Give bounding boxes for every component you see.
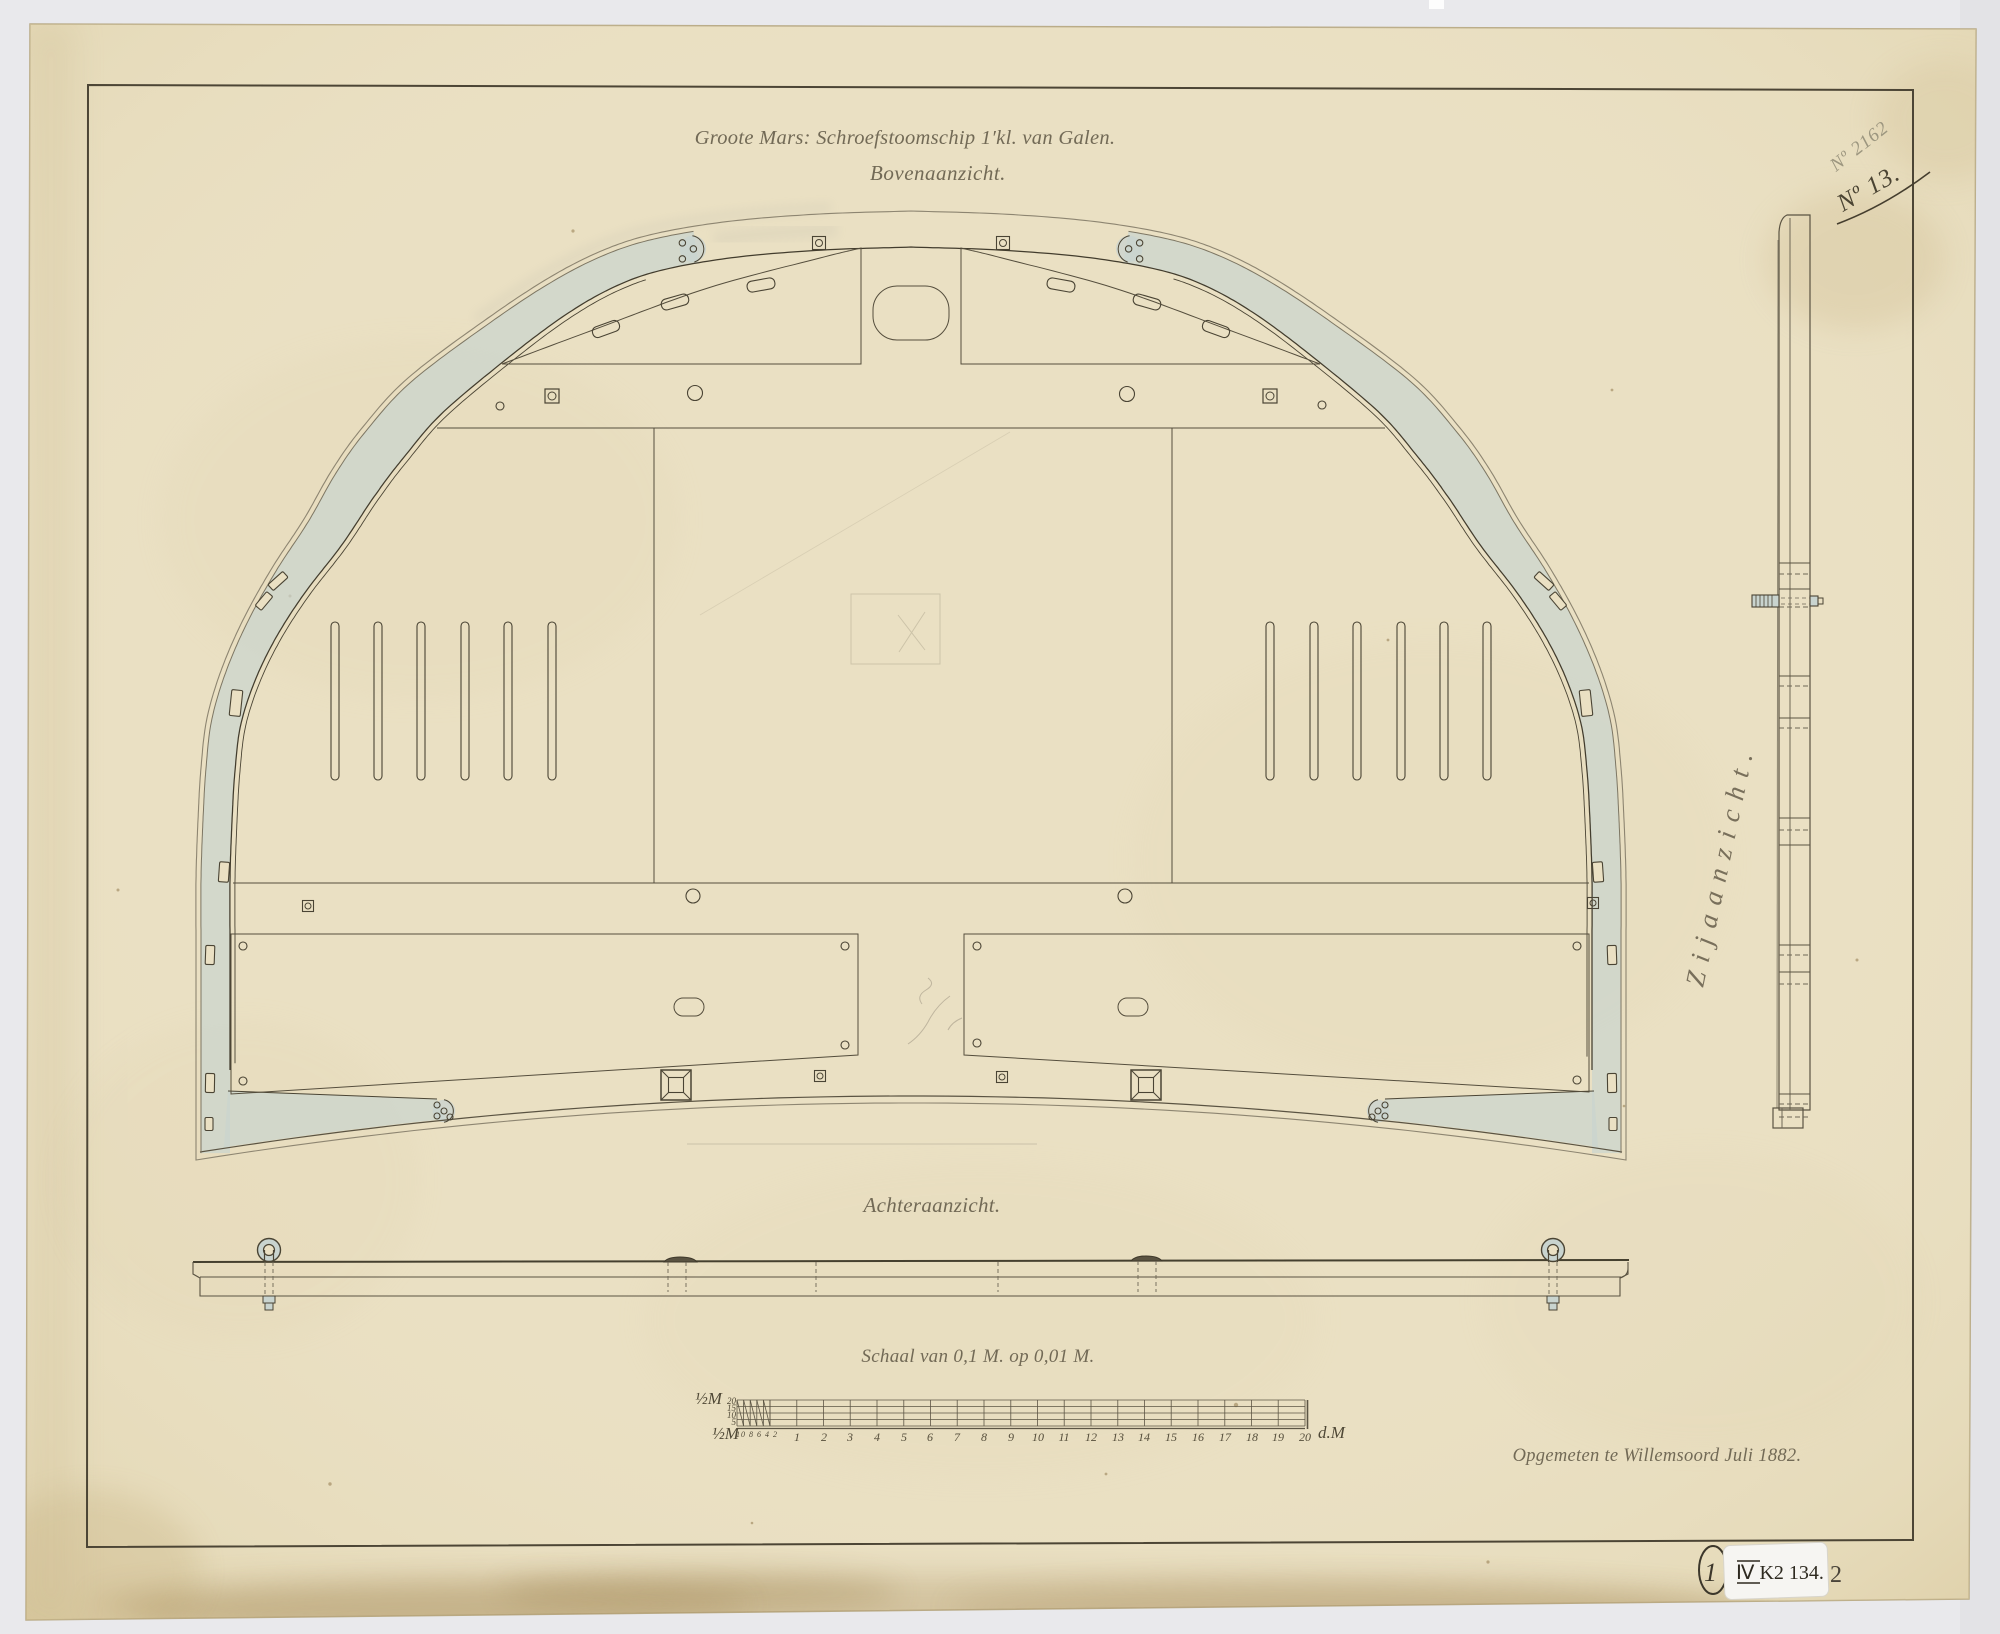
svg-text:15: 15 xyxy=(1165,1430,1177,1444)
svg-text:8: 8 xyxy=(981,1430,987,1444)
svg-text:Schaal van 0,1 M. op 0,01 M.: Schaal van 0,1 M. op 0,01 M. xyxy=(861,1346,1094,1367)
svg-text:d.M: d.M xyxy=(1318,1423,1346,1442)
svg-text:11: 11 xyxy=(1058,1430,1069,1444)
svg-text:1: 1 xyxy=(794,1430,800,1444)
svg-text:Bovenaanzicht.: Bovenaanzicht. xyxy=(870,161,1006,185)
svg-text:6: 6 xyxy=(927,1430,933,1444)
svg-text:Groote Mars: Schroefstoomschip: Groote Mars: Schroefstoomschip 1′kl. van… xyxy=(695,127,1116,149)
svg-text:Achteraanzicht.: Achteraanzicht. xyxy=(862,1193,1001,1217)
svg-text:19: 19 xyxy=(1272,1430,1284,1444)
svg-text:4: 4 xyxy=(874,1430,880,1444)
svg-text:14: 14 xyxy=(1138,1430,1150,1444)
svg-text:12: 12 xyxy=(1085,1430,1097,1444)
svg-text:Ⅳ K2 134.: Ⅳ K2 134. xyxy=(1736,1562,1824,1584)
svg-text:13: 13 xyxy=(1112,1430,1124,1444)
svg-text:Opgemeten te Willemsoord Juli: Opgemeten te Willemsoord Juli 1882. xyxy=(1513,1446,1802,1466)
svg-text:½M: ½M xyxy=(695,1389,723,1408)
svg-text:2: 2 xyxy=(1830,1562,1842,1588)
svg-text:16: 16 xyxy=(1192,1430,1204,1444)
svg-text:7: 7 xyxy=(954,1430,961,1444)
svg-text:17: 17 xyxy=(1219,1430,1232,1444)
svg-text:20: 20 xyxy=(1299,1430,1311,1444)
svg-text:18: 18 xyxy=(1246,1430,1258,1444)
svg-text:1: 1 xyxy=(1704,1558,1717,1587)
svg-text:10 8 6 4 2: 10 8 6 4 2 xyxy=(736,1430,778,1439)
svg-text:2: 2 xyxy=(821,1430,827,1444)
svg-text:5: 5 xyxy=(901,1430,907,1444)
svg-text:3: 3 xyxy=(846,1430,853,1444)
svg-text:½M: ½M xyxy=(712,1424,740,1443)
svg-text:10: 10 xyxy=(1032,1430,1044,1444)
svg-text:9: 9 xyxy=(1008,1430,1014,1444)
